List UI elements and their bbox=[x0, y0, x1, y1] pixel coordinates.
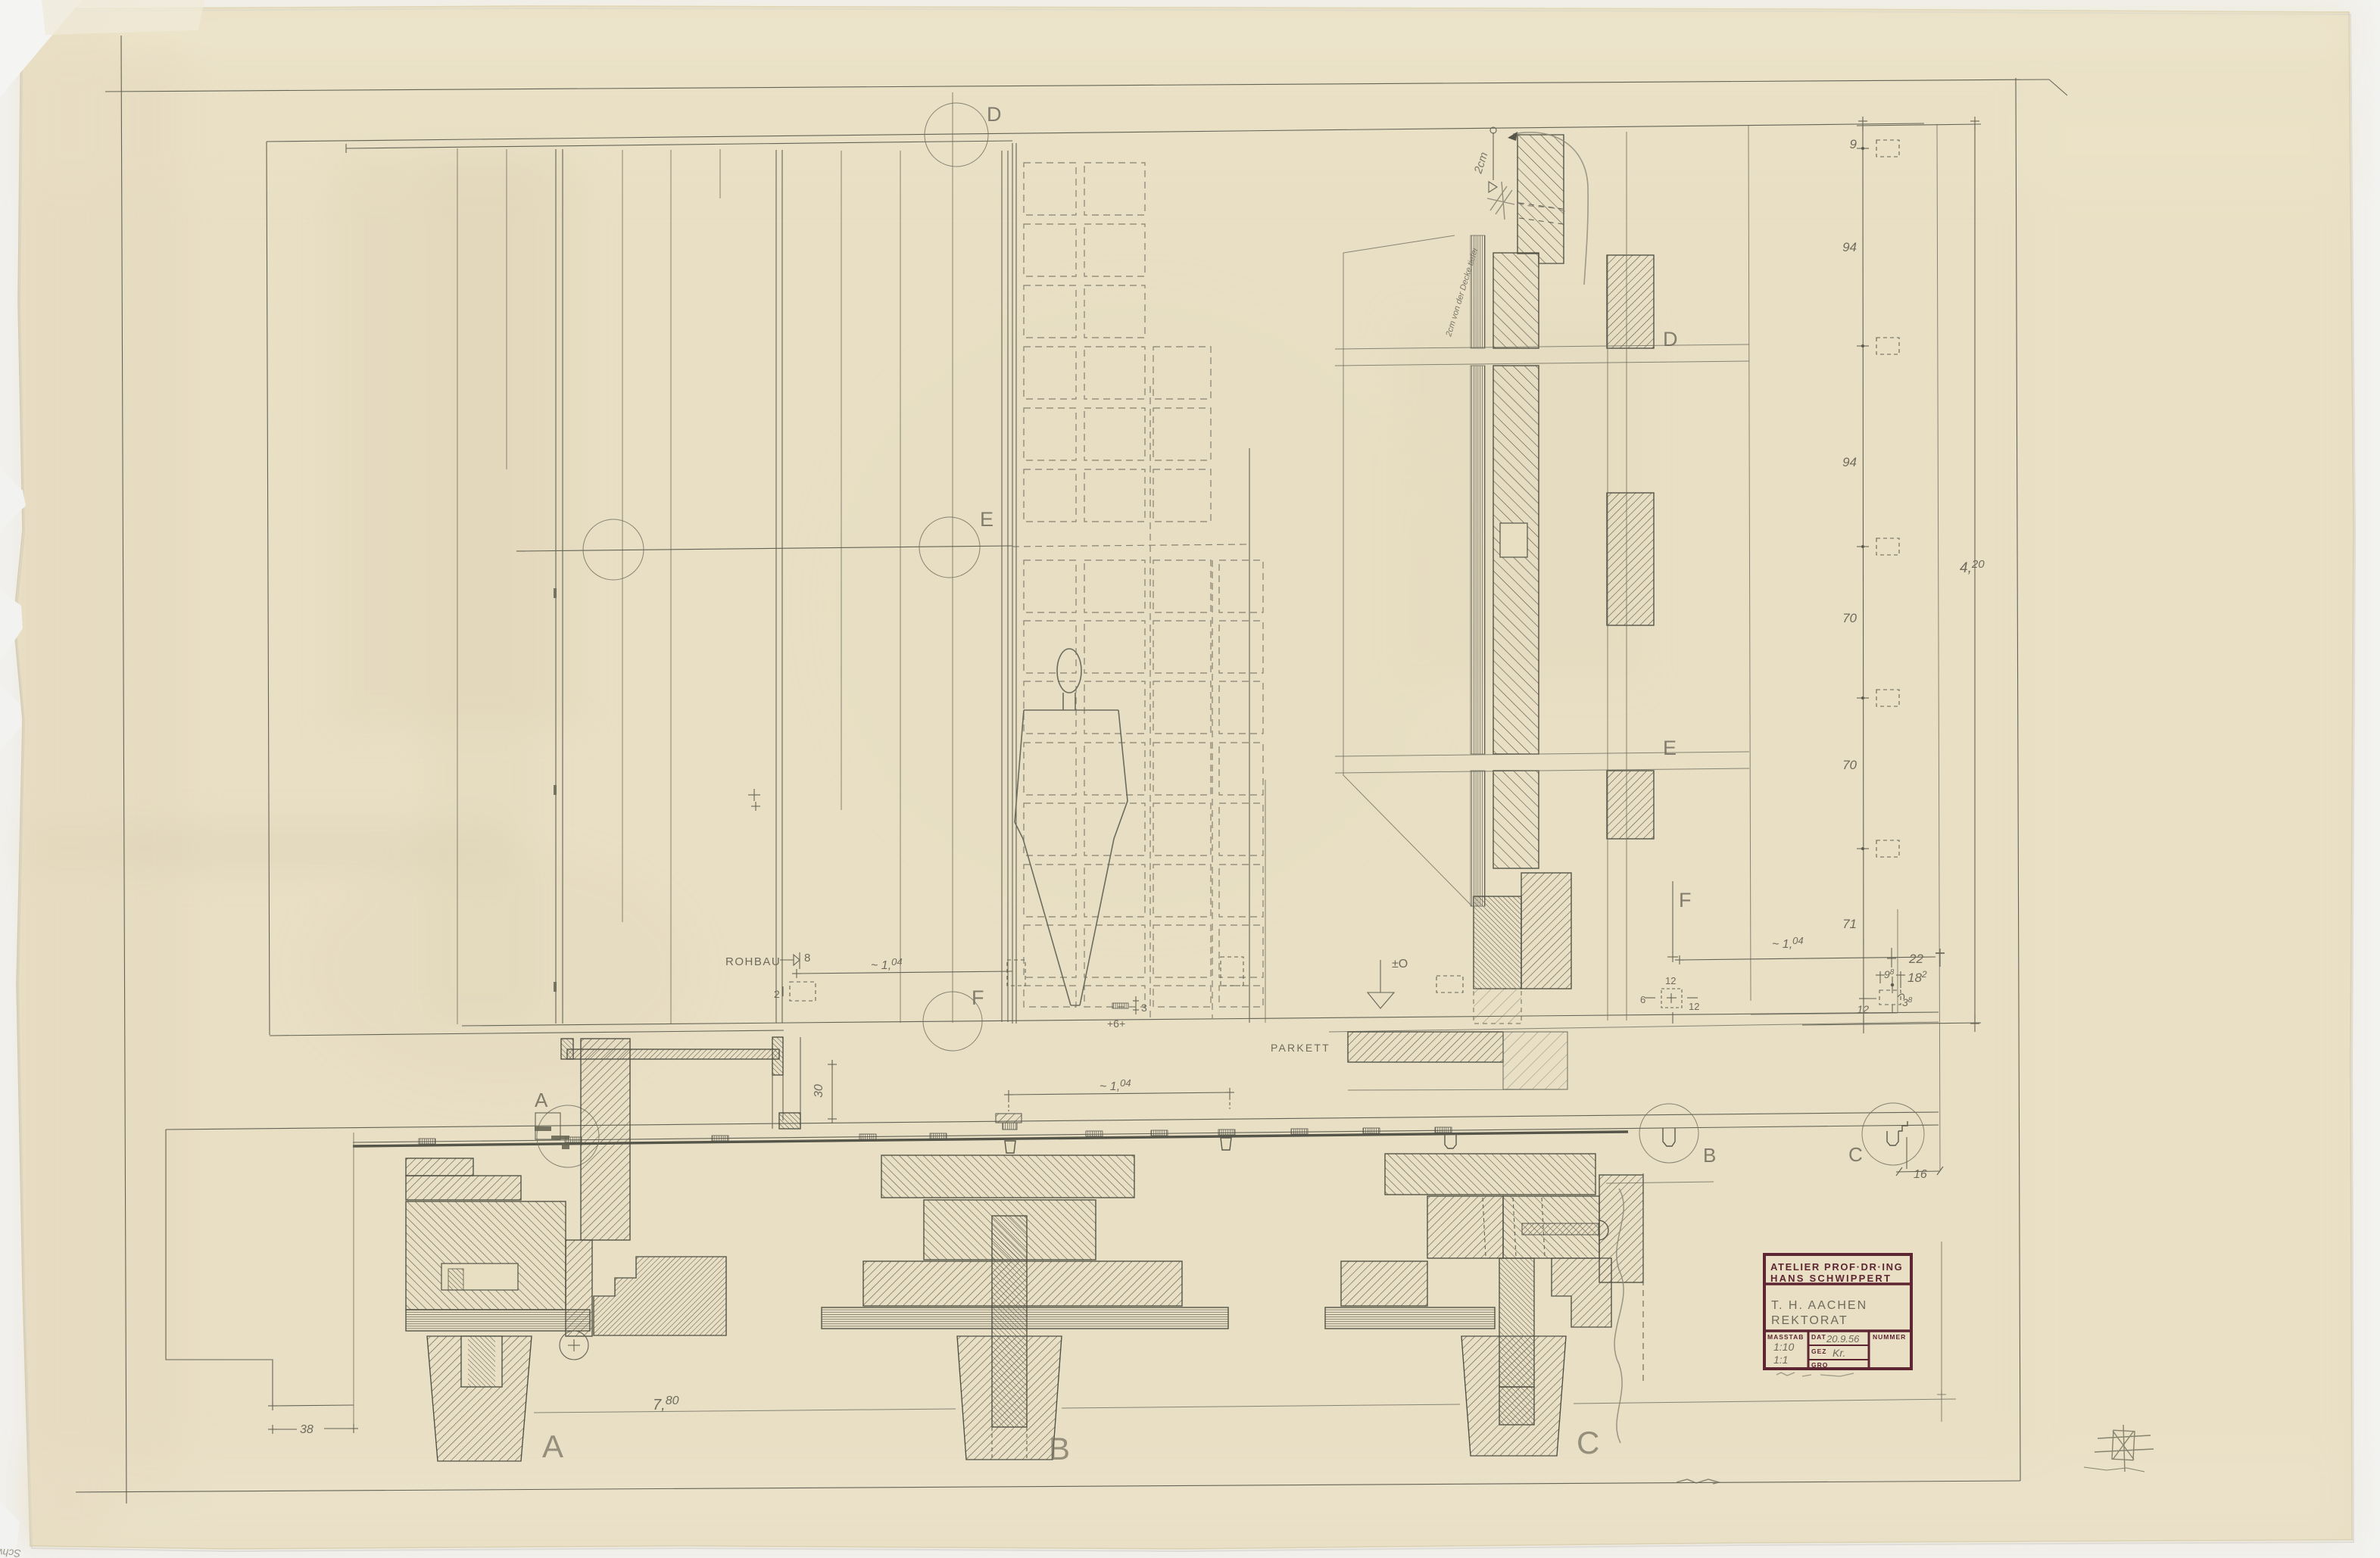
svg-text:±O: ±O bbox=[1392, 958, 1408, 971]
svg-text:9: 9 bbox=[1850, 137, 1858, 151]
svg-text:A: A bbox=[542, 1429, 563, 1464]
svg-text:B: B bbox=[1703, 1144, 1716, 1167]
svg-text:ROHBAU: ROHBAU bbox=[725, 955, 781, 968]
svg-text:12: 12 bbox=[1689, 1001, 1699, 1012]
svg-text:MASSTAB: MASSTAB bbox=[1767, 1333, 1804, 1341]
svg-text:70: 70 bbox=[1842, 611, 1857, 625]
svg-text:12: 12 bbox=[1665, 975, 1676, 986]
svg-text:94: 94 bbox=[1842, 240, 1857, 254]
svg-text:22: 22 bbox=[1908, 952, 1923, 966]
svg-text:1:1: 1:1 bbox=[1773, 1354, 1788, 1366]
svg-text:2: 2 bbox=[774, 988, 780, 1000]
svg-text:20.9.56: 20.9.56 bbox=[1826, 1333, 1860, 1345]
svg-text:C: C bbox=[1577, 1425, 1599, 1460]
svg-text:1:10: 1:10 bbox=[1773, 1341, 1794, 1353]
svg-text:F: F bbox=[1679, 889, 1692, 911]
svg-text:71: 71 bbox=[1842, 917, 1857, 931]
svg-text:GRO: GRO bbox=[1811, 1361, 1828, 1369]
svg-text:DAT: DAT bbox=[1811, 1333, 1826, 1341]
svg-text:6: 6 bbox=[1640, 994, 1645, 1005]
svg-text:ATELIER PROF·DR·ING: ATELIER PROF·DR·ING bbox=[1770, 1261, 1903, 1273]
svg-text:C: C bbox=[1848, 1143, 1863, 1166]
svg-text:B: B bbox=[1049, 1431, 1070, 1466]
svg-text:8: 8 bbox=[804, 952, 810, 964]
svg-text:PARKETT: PARKETT bbox=[1271, 1042, 1330, 1054]
svg-text:16: 16 bbox=[1914, 1168, 1927, 1181]
svg-text:38: 38 bbox=[300, 1423, 313, 1436]
svg-text:3: 3 bbox=[1141, 1002, 1147, 1014]
svg-text:Kr.: Kr. bbox=[1833, 1347, 1845, 1359]
svg-text:70: 70 bbox=[1842, 758, 1857, 772]
svg-text:E: E bbox=[980, 508, 993, 531]
svg-text:T. H. AACHEN: T. H. AACHEN bbox=[1771, 1299, 1867, 1312]
svg-text:REKTORAT: REKTORAT bbox=[1771, 1314, 1848, 1327]
svg-text:GEZ: GEZ bbox=[1811, 1348, 1826, 1355]
svg-text:F: F bbox=[972, 986, 984, 1009]
svg-text:D: D bbox=[1663, 328, 1678, 351]
svg-text:+6+: +6+ bbox=[1107, 1017, 1125, 1030]
svg-text:E: E bbox=[1663, 737, 1677, 759]
svg-text:30: 30 bbox=[813, 1084, 825, 1098]
svg-text:94: 94 bbox=[1842, 455, 1857, 469]
svg-text:A: A bbox=[535, 1089, 548, 1111]
svg-text:D: D bbox=[987, 103, 1002, 126]
svg-text:NUMMER: NUMMER bbox=[1873, 1333, 1906, 1341]
svg-text:HANS SCHWIPPERT: HANS SCHWIPPERT bbox=[1770, 1273, 1892, 1284]
